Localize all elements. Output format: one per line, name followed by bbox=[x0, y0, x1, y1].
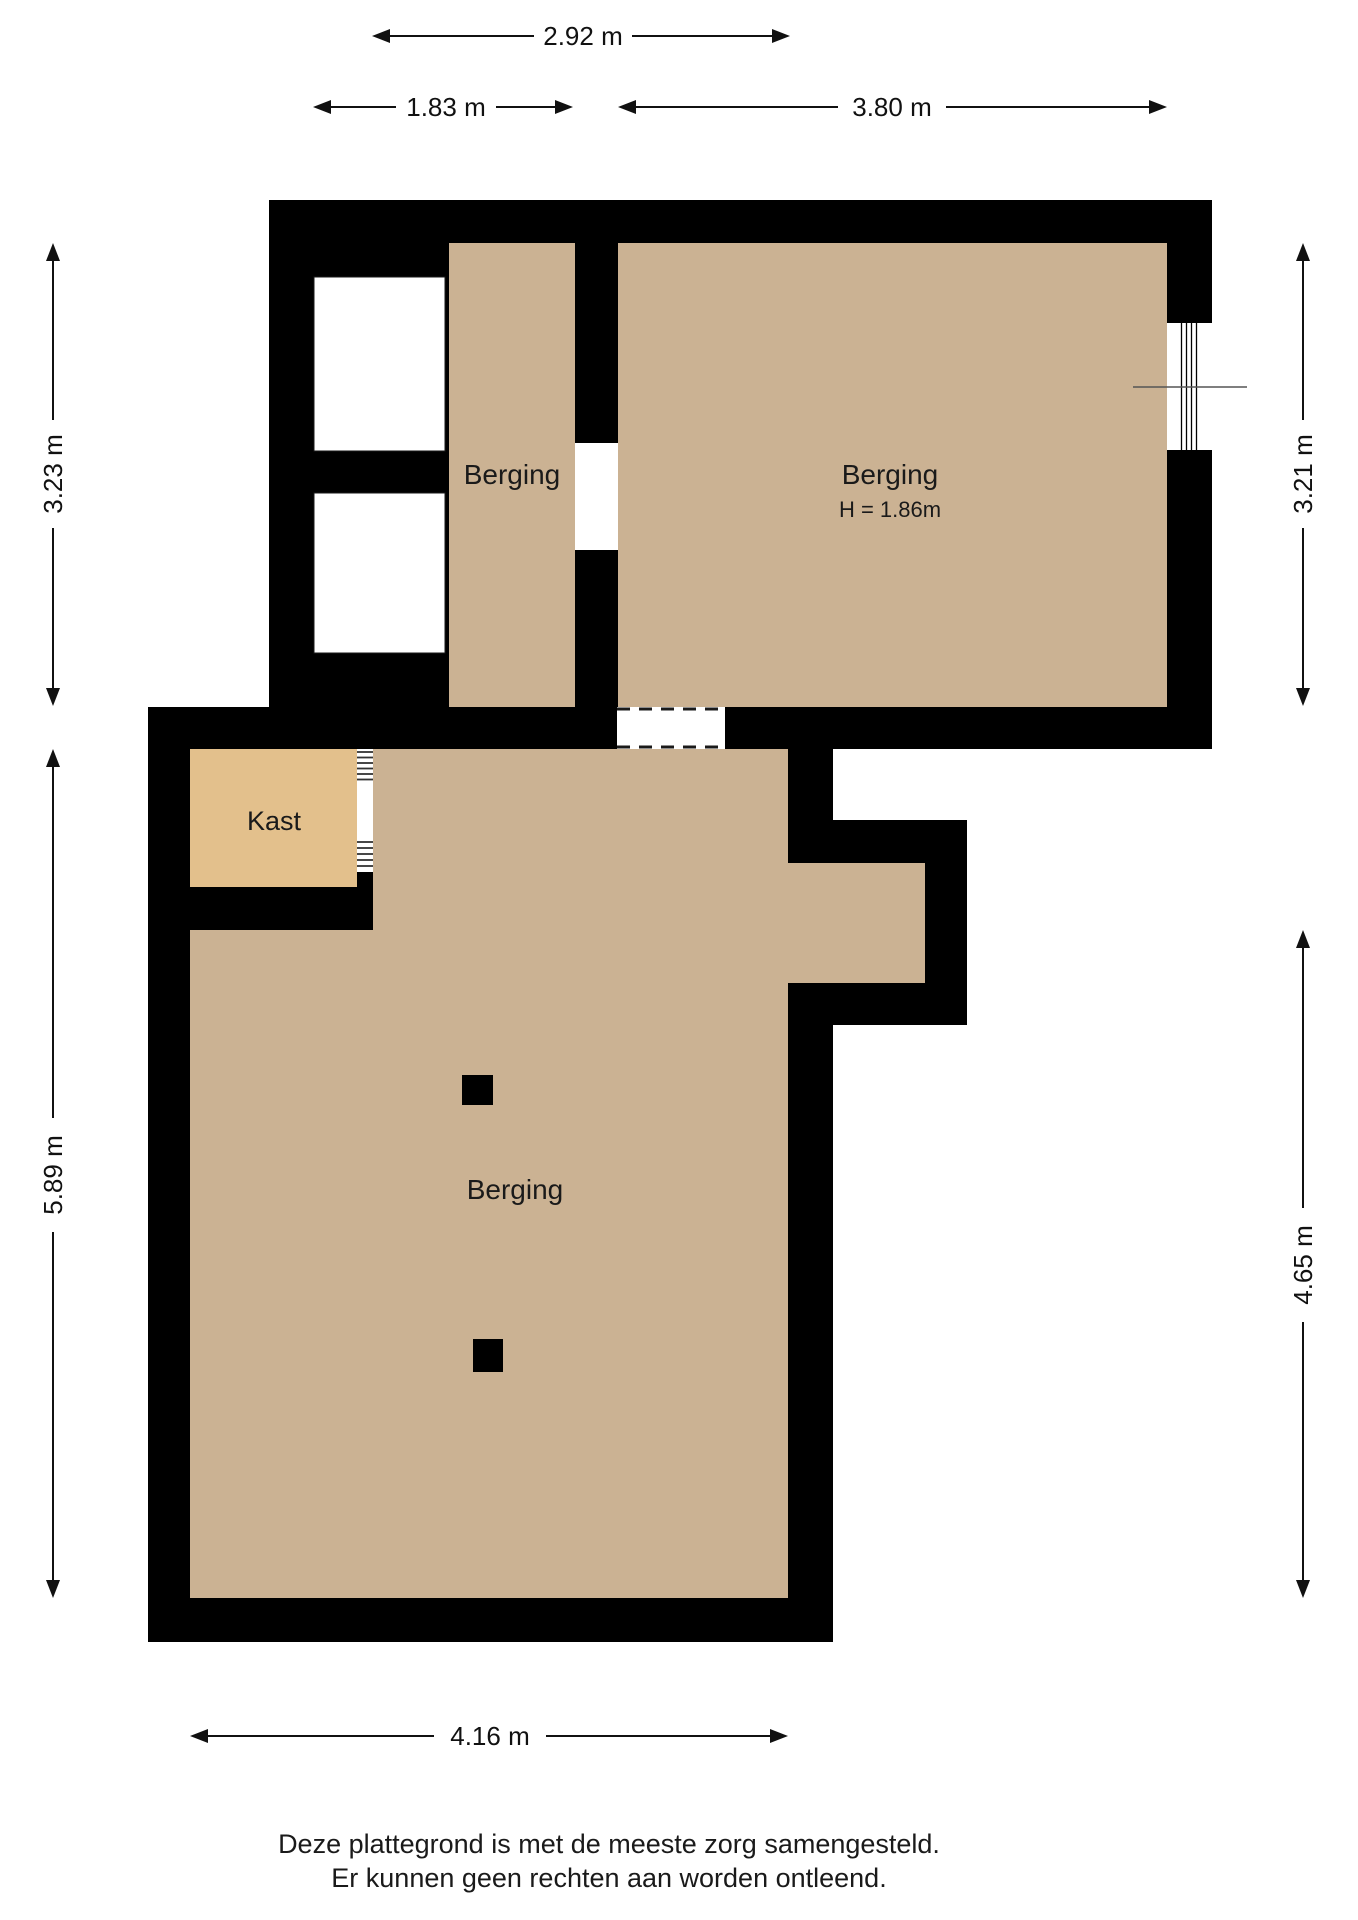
label-berging-upper-right-height: H = 1.86m bbox=[839, 497, 941, 522]
label-berging-upper-left: Berging bbox=[464, 459, 561, 490]
niche-lower bbox=[314, 493, 445, 653]
dimension-top-width-label: 2.92 m bbox=[543, 21, 623, 51]
wall-lower-right-lower bbox=[788, 1025, 833, 1642]
wall-bump-top bbox=[833, 820, 967, 863]
wall-below-kast bbox=[148, 887, 373, 930]
wall-bump-bottom bbox=[788, 983, 967, 1025]
footer-line-2: Er kunnen geen rechten aan worden ontlee… bbox=[331, 1863, 886, 1893]
floorplan-page: Berging Berging H = 1.86m Kast Berging 2… bbox=[0, 0, 1358, 1920]
floorplan-drawing: Berging Berging H = 1.86m Kast Berging 2… bbox=[0, 0, 1358, 1920]
wall-upper-right bbox=[1167, 243, 1212, 749]
dimension-lower-right-height-label: 4.65 m bbox=[1288, 1225, 1318, 1305]
wall-upper-top bbox=[269, 200, 1212, 243]
dimension-upper-right-height-label: 3.21 m bbox=[1288, 434, 1318, 514]
wall-lower-right-upper bbox=[788, 749, 833, 863]
dimension-upper-left-height-label: 3.23 m bbox=[38, 434, 68, 514]
room-berging-lower-floor-main bbox=[190, 930, 788, 1598]
kast-door-stub bbox=[357, 872, 373, 887]
kast-door-symbol bbox=[357, 749, 373, 887]
room-berging-lower-floor-top bbox=[373, 749, 788, 931]
footer-line-1: Deze plattegrond is met de meeste zorg s… bbox=[278, 1829, 940, 1859]
room-berging-lower-floor-bump bbox=[788, 863, 925, 983]
dashed-passage bbox=[617, 707, 725, 749]
door-opening-upper bbox=[575, 443, 618, 550]
pillar-upper bbox=[462, 1075, 493, 1105]
dimension-top-right-width-label: 3.80 m bbox=[852, 92, 932, 122]
label-kast: Kast bbox=[247, 806, 302, 836]
passage-gap bbox=[617, 707, 725, 749]
dimension-bottom-width-label: 4.16 m bbox=[450, 1721, 530, 1751]
pillar-lower bbox=[473, 1339, 503, 1372]
wall-lower-bottom bbox=[148, 1598, 832, 1642]
dimension-lower-left-height-label: 5.89 m bbox=[38, 1135, 68, 1215]
wall-lower-left bbox=[148, 707, 190, 1642]
niche-upper bbox=[314, 277, 445, 451]
label-berging-upper-right: Berging bbox=[842, 459, 939, 490]
dimension-top-left-width-label: 1.83 m bbox=[406, 92, 486, 122]
label-berging-lower: Berging bbox=[467, 1174, 564, 1205]
